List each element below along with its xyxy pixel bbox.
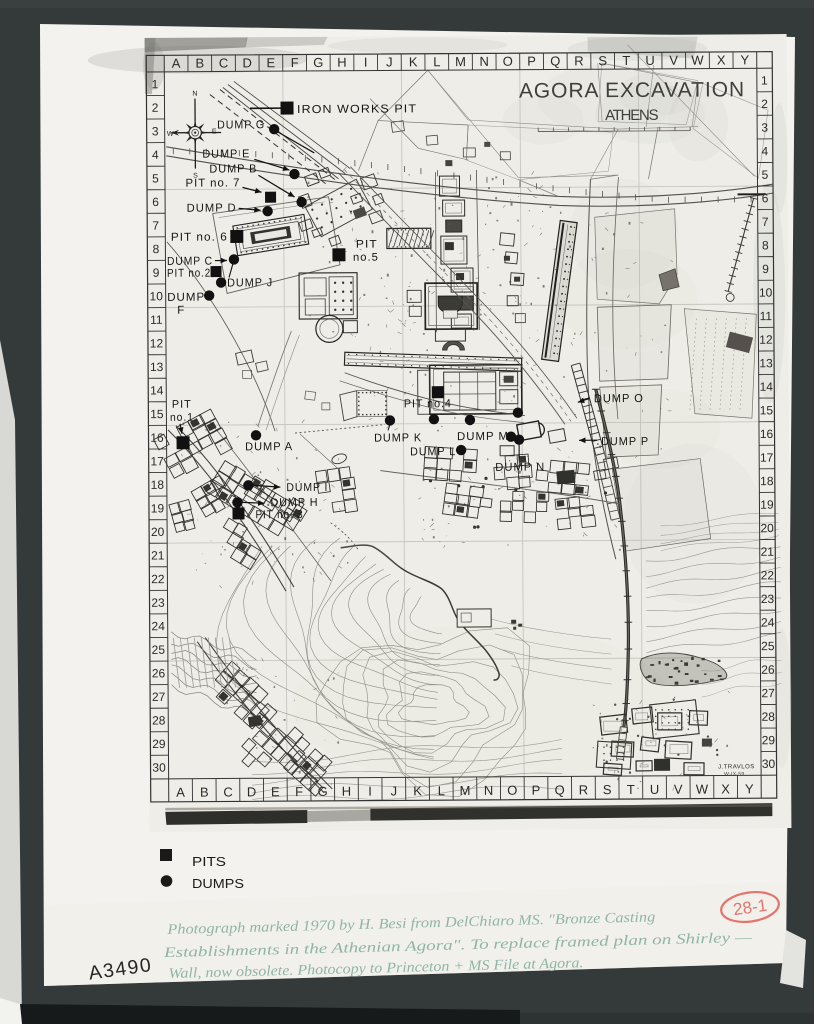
- svg-text:24: 24: [761, 615, 775, 629]
- svg-text:18: 18: [151, 478, 165, 492]
- svg-text:30: 30: [762, 757, 776, 771]
- svg-text:25: 25: [761, 639, 775, 653]
- svg-text:19: 19: [760, 498, 774, 512]
- svg-text:28: 28: [762, 710, 776, 724]
- svg-text:L: L: [438, 783, 445, 798]
- svg-text:AGORA EXCAVATION: AGORA EXCAVATION: [519, 78, 746, 102]
- svg-text:DUMP L: DUMP L: [410, 446, 456, 458]
- svg-text:PIT: PIT: [172, 399, 192, 411]
- svg-text:DUMP E: DUMP E: [202, 148, 250, 160]
- svg-text:2: 2: [152, 101, 159, 115]
- svg-text:22: 22: [761, 568, 775, 582]
- svg-text:DUMPS: DUMPS: [192, 876, 244, 891]
- svg-text:IRON WORKS PIT: IRON WORKS PIT: [297, 103, 417, 116]
- svg-text:P: P: [532, 783, 541, 798]
- svg-text:5: 5: [152, 171, 159, 185]
- svg-text:E: E: [271, 784, 280, 799]
- svg-text:N: N: [479, 54, 488, 69]
- svg-text:C: C: [219, 55, 228, 70]
- svg-text:E: E: [212, 129, 217, 136]
- svg-text:G: G: [313, 55, 323, 70]
- svg-text:V: V: [674, 782, 683, 797]
- svg-text:6: 6: [152, 195, 159, 209]
- svg-text:H: H: [342, 784, 351, 799]
- svg-text:S: S: [603, 782, 612, 797]
- svg-text:E: E: [266, 55, 275, 70]
- svg-text:20: 20: [151, 525, 165, 539]
- svg-text:DUMP I: DUMP I: [286, 482, 328, 494]
- svg-text:15: 15: [760, 403, 774, 417]
- svg-text:T: T: [622, 53, 630, 68]
- svg-text:PIT: PIT: [356, 239, 378, 251]
- svg-text:1: 1: [761, 73, 768, 87]
- svg-text:T: T: [627, 782, 635, 797]
- svg-text:U: U: [650, 782, 659, 797]
- svg-text:V: V: [669, 53, 678, 68]
- svg-text:O: O: [507, 783, 517, 798]
- svg-text:8: 8: [153, 242, 160, 256]
- svg-text:12: 12: [150, 336, 164, 350]
- svg-text:Q: Q: [550, 53, 560, 68]
- svg-text:9: 9: [762, 262, 769, 276]
- svg-text:F: F: [177, 305, 185, 317]
- svg-text:DUMP N: DUMP N: [495, 462, 545, 474]
- svg-text:3: 3: [761, 121, 768, 135]
- svg-text:Y: Y: [740, 52, 749, 67]
- svg-text:18: 18: [760, 474, 774, 488]
- svg-text:17: 17: [150, 454, 164, 468]
- svg-text:1: 1: [151, 77, 158, 91]
- svg-text:J.TRAVLOS: J.TRAVLOS: [718, 764, 755, 770]
- svg-text:19: 19: [151, 501, 165, 515]
- svg-text:DUMP H: DUMP H: [270, 497, 318, 509]
- svg-text:30: 30: [152, 761, 166, 775]
- svg-text:N: N: [192, 91, 197, 98]
- svg-text:4: 4: [761, 144, 768, 158]
- svg-text:DUMP P: DUMP P: [601, 436, 649, 448]
- svg-text:F: F: [291, 55, 299, 70]
- svg-text:M: M: [455, 54, 466, 69]
- svg-text:17: 17: [760, 451, 774, 465]
- svg-text:W: W: [167, 131, 174, 138]
- svg-text:DUMP K: DUMP K: [374, 432, 422, 444]
- svg-text:10: 10: [149, 289, 163, 303]
- svg-text:27: 27: [761, 686, 775, 700]
- svg-text:DUMP D: DUMP D: [187, 202, 237, 214]
- svg-text:I: I: [364, 55, 368, 70]
- svg-text:9: 9: [153, 266, 160, 280]
- svg-text:no.5: no.5: [353, 252, 379, 264]
- svg-text:16: 16: [150, 431, 164, 445]
- svg-text:J: J: [391, 783, 398, 798]
- svg-text:O: O: [503, 54, 513, 69]
- svg-text:DUMP: DUMP: [167, 292, 205, 304]
- svg-text:27: 27: [152, 690, 166, 704]
- svg-text:DUMP B: DUMP B: [209, 163, 257, 175]
- svg-text:21: 21: [151, 548, 165, 562]
- svg-text:29: 29: [152, 737, 166, 751]
- svg-text:DUMP G: DUMP G: [217, 119, 265, 131]
- svg-text:Y: Y: [745, 781, 754, 796]
- svg-text:G: G: [318, 784, 328, 799]
- svg-text:11: 11: [150, 313, 163, 327]
- svg-text:PIT no. 3: PIT no. 3: [255, 509, 303, 521]
- svg-text:L: L: [433, 54, 440, 69]
- svg-text:13: 13: [759, 356, 773, 370]
- svg-text:PITS: PITS: [192, 854, 226, 869]
- svg-text:15: 15: [150, 407, 164, 421]
- svg-text:M: M: [460, 783, 471, 798]
- svg-text:2: 2: [761, 97, 768, 111]
- svg-text:25: 25: [152, 643, 166, 657]
- svg-text:I: I: [368, 784, 372, 799]
- svg-text:26: 26: [761, 663, 775, 677]
- svg-text:R: R: [579, 782, 588, 797]
- svg-text:W: W: [696, 782, 709, 797]
- svg-text:K: K: [413, 783, 422, 798]
- svg-text:no.1: no.1: [170, 412, 194, 424]
- svg-text:28: 28: [152, 713, 166, 727]
- svg-text:D: D: [242, 55, 251, 70]
- svg-text:16: 16: [760, 427, 774, 441]
- svg-text:5: 5: [762, 168, 769, 182]
- svg-text:26: 26: [152, 666, 166, 680]
- svg-text:PIT no.2: PIT no.2: [167, 268, 211, 280]
- svg-text:F: F: [295, 784, 303, 799]
- svg-text:8: 8: [762, 238, 769, 252]
- svg-text:6: 6: [762, 191, 769, 205]
- svg-text:B: B: [200, 785, 209, 800]
- svg-text:X: X: [721, 781, 730, 796]
- svg-text:H: H: [337, 55, 346, 70]
- svg-text:7: 7: [152, 219, 159, 233]
- svg-text:DUMP O: DUMP O: [594, 393, 644, 405]
- svg-text:X: X: [717, 52, 726, 67]
- svg-text:11: 11: [760, 309, 773, 323]
- svg-text:PIT no. 7: PIT no. 7: [185, 177, 240, 189]
- svg-text:P: P: [527, 54, 536, 69]
- svg-text:DUMP J: DUMP J: [227, 277, 273, 289]
- svg-text:7: 7: [762, 215, 769, 229]
- svg-text:22: 22: [151, 572, 165, 586]
- svg-text:3: 3: [152, 124, 159, 138]
- svg-text:24: 24: [151, 619, 165, 633]
- svg-text:PIT no. 6: PIT no. 6: [171, 231, 228, 243]
- svg-text:A: A: [172, 56, 181, 71]
- svg-text:Q: Q: [555, 782, 565, 797]
- svg-text:12: 12: [759, 333, 773, 347]
- svg-text:A: A: [176, 785, 185, 800]
- svg-text:U: U: [645, 53, 654, 68]
- svg-text:B: B: [195, 56, 204, 71]
- svg-text:14: 14: [760, 380, 774, 394]
- svg-text:K: K: [409, 54, 418, 69]
- svg-text:13: 13: [150, 360, 164, 374]
- svg-text:DUMP M: DUMP M: [457, 431, 509, 443]
- svg-text:DUMP A: DUMP A: [245, 441, 293, 453]
- svg-text:10: 10: [759, 286, 773, 300]
- svg-text:29: 29: [762, 733, 776, 747]
- svg-text:DUMP C: DUMP C: [167, 256, 213, 268]
- svg-text:W: W: [691, 53, 704, 68]
- svg-text:20: 20: [760, 521, 774, 535]
- svg-text:J: J: [386, 54, 393, 69]
- svg-text:ATHENS: ATHENS: [605, 107, 660, 124]
- svg-text:S: S: [598, 53, 607, 68]
- svg-text:C: C: [223, 784, 232, 799]
- svg-text:R: R: [574, 53, 583, 68]
- svg-text:23: 23: [761, 592, 775, 606]
- svg-text:PIT no.4: PIT no.4: [404, 398, 452, 410]
- svg-text:N: N: [484, 783, 493, 798]
- svg-text:23: 23: [151, 596, 165, 610]
- svg-text:21: 21: [761, 545, 775, 559]
- svg-text:4: 4: [152, 148, 159, 162]
- svg-text:W-IX-59: W-IX-59: [724, 771, 744, 777]
- svg-text:14: 14: [150, 383, 164, 397]
- svg-text:D: D: [247, 784, 256, 799]
